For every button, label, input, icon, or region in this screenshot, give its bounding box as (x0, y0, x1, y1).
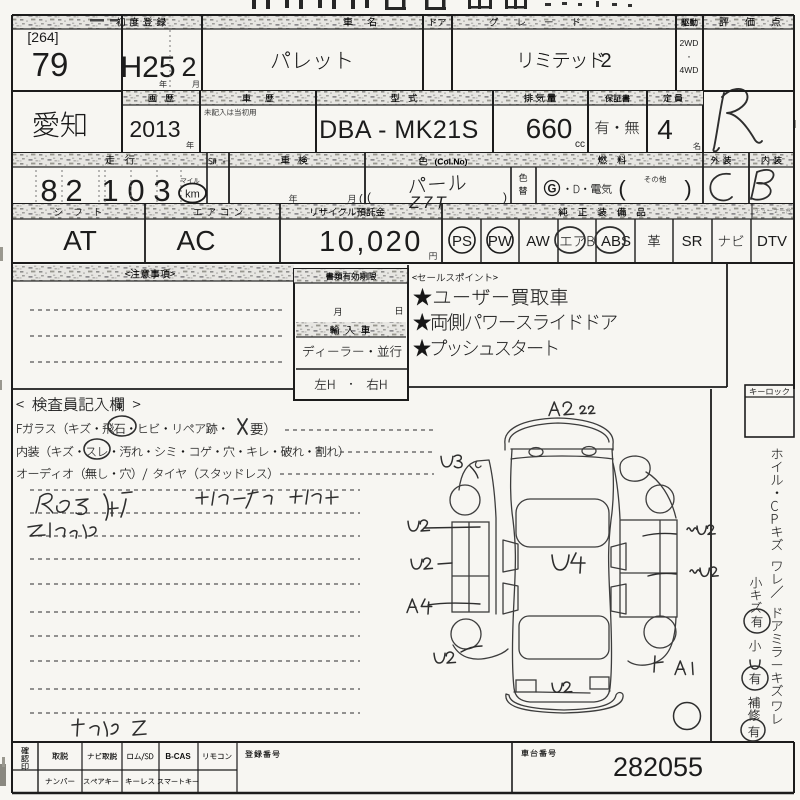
svg-text:0: 0 (127, 173, 144, 208)
svg-text:DBA - MK21S: DBA - MK21S (319, 116, 479, 144)
svg-text:H25: H25 (120, 51, 175, 84)
svg-text:*: * (222, 159, 225, 168)
svg-text:2: 2 (600, 50, 611, 72)
svg-text:·: · (687, 49, 691, 63)
svg-text:[264]: [264] (27, 29, 58, 45)
svg-text:Z7T: Z7T (408, 193, 448, 212)
svg-text:AT: AT (63, 225, 97, 256)
svg-text:2: 2 (181, 52, 196, 82)
svg-text:(: ( (367, 190, 371, 204)
svg-text:660: 660 (526, 113, 573, 144)
svg-text:PW: PW (488, 233, 513, 250)
svg-text:AW: AW (526, 233, 550, 250)
svg-text:79: 79 (32, 46, 69, 83)
svg-text:282055: 282055 (613, 752, 703, 782)
svg-text:8: 8 (40, 173, 57, 208)
svg-text:G: G (548, 184, 557, 196)
svg-text:2: 2 (65, 173, 82, 208)
svg-text:2WD: 2WD (680, 38, 699, 48)
svg-text:4WD: 4WD (680, 65, 699, 75)
svg-text:DTV: DTV (757, 233, 787, 250)
svg-text:AC: AC (177, 225, 216, 256)
svg-text:10,020: 10,020 (319, 226, 423, 258)
svg-text:km: km (185, 189, 200, 201)
svg-text:): ) (503, 190, 507, 204)
svg-text:B-CAS: B-CAS (165, 752, 191, 761)
svg-text:ABS: ABS (601, 233, 631, 250)
svg-text:(: ( (618, 176, 626, 201)
svg-text:3: 3 (153, 173, 170, 208)
svg-text:PS: PS (452, 233, 472, 250)
svg-text:2013: 2013 (129, 116, 180, 142)
svg-text:1: 1 (101, 173, 118, 208)
svg-text:cc: cc (575, 139, 585, 150)
svg-text:(Col.No): (Col.No) (434, 157, 467, 167)
svg-text:4: 4 (657, 114, 673, 145)
svg-text:SR: SR (682, 233, 703, 250)
svg-text:): ) (684, 176, 691, 201)
